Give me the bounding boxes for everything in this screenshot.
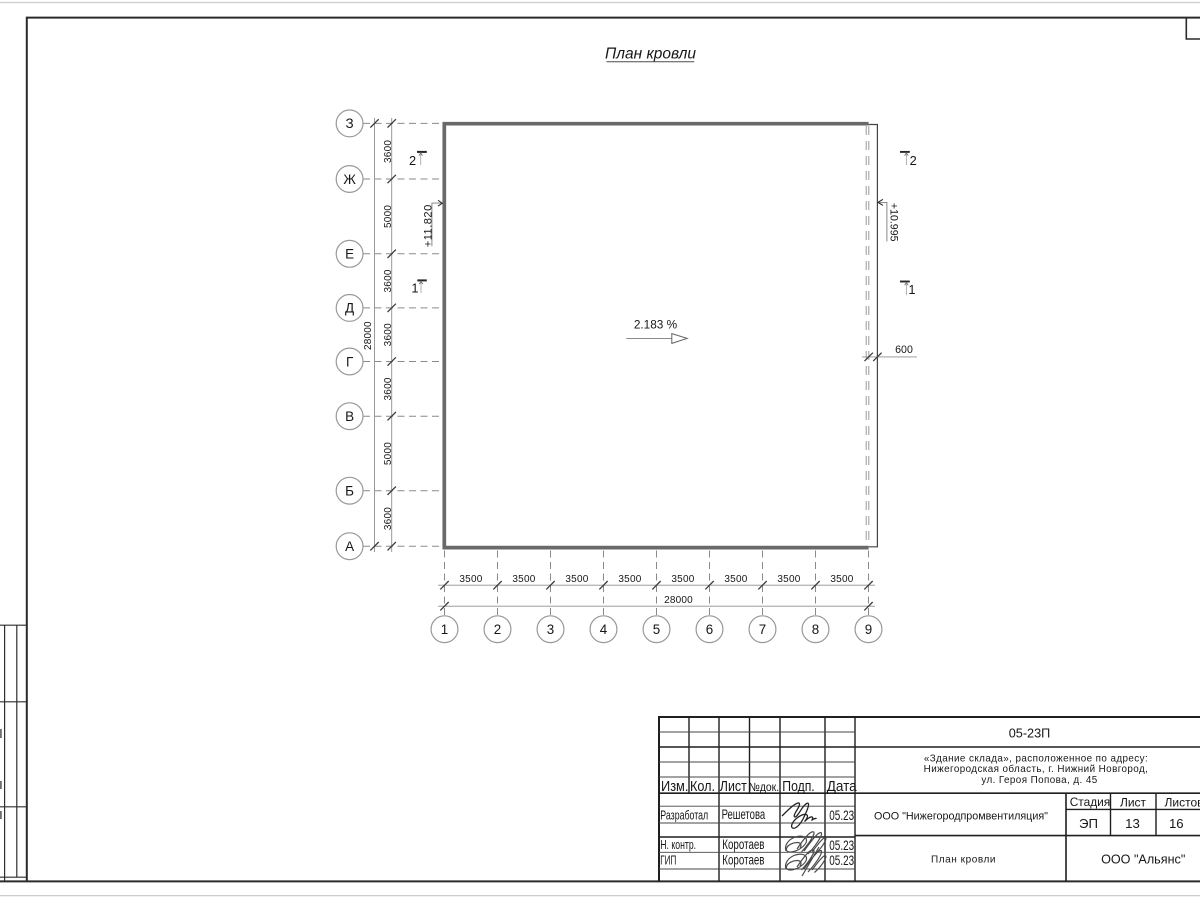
svg-text:5000: 5000: [383, 205, 394, 228]
svg-text:Д: Д: [345, 301, 354, 316]
svg-text:Коротаев: Коротаев: [722, 852, 764, 867]
svg-text:Стадия: Стадия: [1070, 795, 1111, 809]
svg-text:Изм.: Изм.: [661, 778, 688, 795]
svg-text:Коротаев: Коротаев: [722, 837, 764, 852]
svg-text:+10.995: +10.995: [888, 203, 900, 242]
svg-text:Кол.: Кол.: [690, 778, 715, 795]
svg-text:16: 16: [1169, 816, 1184, 831]
svg-text:3: 3: [547, 622, 554, 637]
svg-text:7: 7: [759, 622, 766, 637]
svg-text:Лист: Лист: [720, 778, 747, 795]
svg-text:3500: 3500: [830, 574, 853, 585]
svg-text:Дата: Дата: [827, 778, 857, 795]
svg-text:Лист: Лист: [1120, 795, 1147, 809]
svg-text:5: 5: [653, 622, 660, 637]
svg-text:3500: 3500: [618, 574, 641, 585]
svg-text:600: 600: [895, 344, 913, 356]
svg-text:ЭП: ЭП: [1079, 816, 1098, 831]
svg-text:Разработал: Разработал: [660, 808, 708, 823]
svg-text:3600: 3600: [383, 269, 394, 292]
svg-text:№док.: №док.: [749, 780, 779, 794]
svg-text:05.23: 05.23: [829, 808, 854, 823]
svg-text:Решетова: Решетова: [722, 807, 766, 822]
svg-text:2: 2: [494, 622, 501, 637]
svg-text:1: 1: [411, 281, 418, 296]
svg-text:3600: 3600: [383, 507, 394, 530]
svg-text:План кровли: План кровли: [931, 855, 996, 866]
svg-text:«Здание склада», расположенное: «Здание склада», расположенное по адресу…: [924, 754, 1148, 765]
svg-text:1: 1: [441, 622, 448, 637]
svg-text:Подп.: Подп.: [782, 778, 814, 795]
svg-text:9: 9: [865, 622, 872, 637]
svg-text:6: 6: [706, 622, 713, 637]
svg-text:Ж: Ж: [343, 172, 356, 187]
svg-text:28000: 28000: [664, 595, 693, 606]
svg-text:3600: 3600: [383, 140, 394, 163]
svg-text:3500: 3500: [671, 574, 694, 585]
svg-text:3500: 3500: [565, 574, 588, 585]
svg-text:План кровли: План кровли: [605, 46, 696, 63]
svg-text:5000: 5000: [383, 442, 394, 465]
svg-text:3600: 3600: [383, 377, 394, 400]
svg-text:3500: 3500: [777, 574, 800, 585]
svg-text:ООО "Альянс": ООО "Альянс": [1101, 852, 1185, 866]
svg-text:05-23П: 05-23П: [1009, 727, 1051, 741]
svg-text:Н. контр.: Н. контр.: [660, 838, 696, 852]
svg-text:Б: Б: [345, 484, 354, 499]
svg-text:8: 8: [812, 622, 819, 637]
svg-text:+11.820: +11.820: [423, 204, 435, 247]
svg-text:Листов: Листов: [1165, 795, 1200, 809]
svg-text:2: 2: [409, 153, 416, 168]
svg-text:05.23: 05.23: [829, 853, 854, 868]
svg-text:А: А: [345, 539, 354, 554]
svg-text:2: 2: [910, 153, 917, 168]
svg-text:В: В: [345, 409, 354, 424]
svg-text:3600: 3600: [383, 323, 394, 346]
svg-text:ул. Героя Попова, д. 45: ул. Героя Попова, д. 45: [981, 775, 1097, 786]
svg-text:3500: 3500: [724, 574, 747, 585]
svg-text:13: 13: [1125, 816, 1140, 831]
svg-text:4: 4: [600, 622, 608, 637]
svg-text:3500: 3500: [512, 574, 535, 585]
svg-text:Г: Г: [346, 354, 354, 369]
svg-text:Е: Е: [345, 247, 354, 262]
svg-text:З: З: [346, 116, 354, 131]
svg-text:ООО "Нижегородпромвентиляция": ООО "Нижегородпромвентиляция": [874, 811, 1048, 823]
svg-text:ГИП: ГИП: [660, 854, 676, 868]
svg-text:05.23: 05.23: [829, 838, 854, 853]
svg-text:2.183 %: 2.183 %: [634, 317, 678, 331]
svg-text:Нижегородская область, г. Нижн: Нижегородская область, г. Нижний Новгоро…: [924, 764, 1149, 775]
svg-text:3500: 3500: [459, 574, 482, 585]
svg-text:28000: 28000: [363, 321, 374, 350]
svg-text:1: 1: [908, 282, 915, 297]
